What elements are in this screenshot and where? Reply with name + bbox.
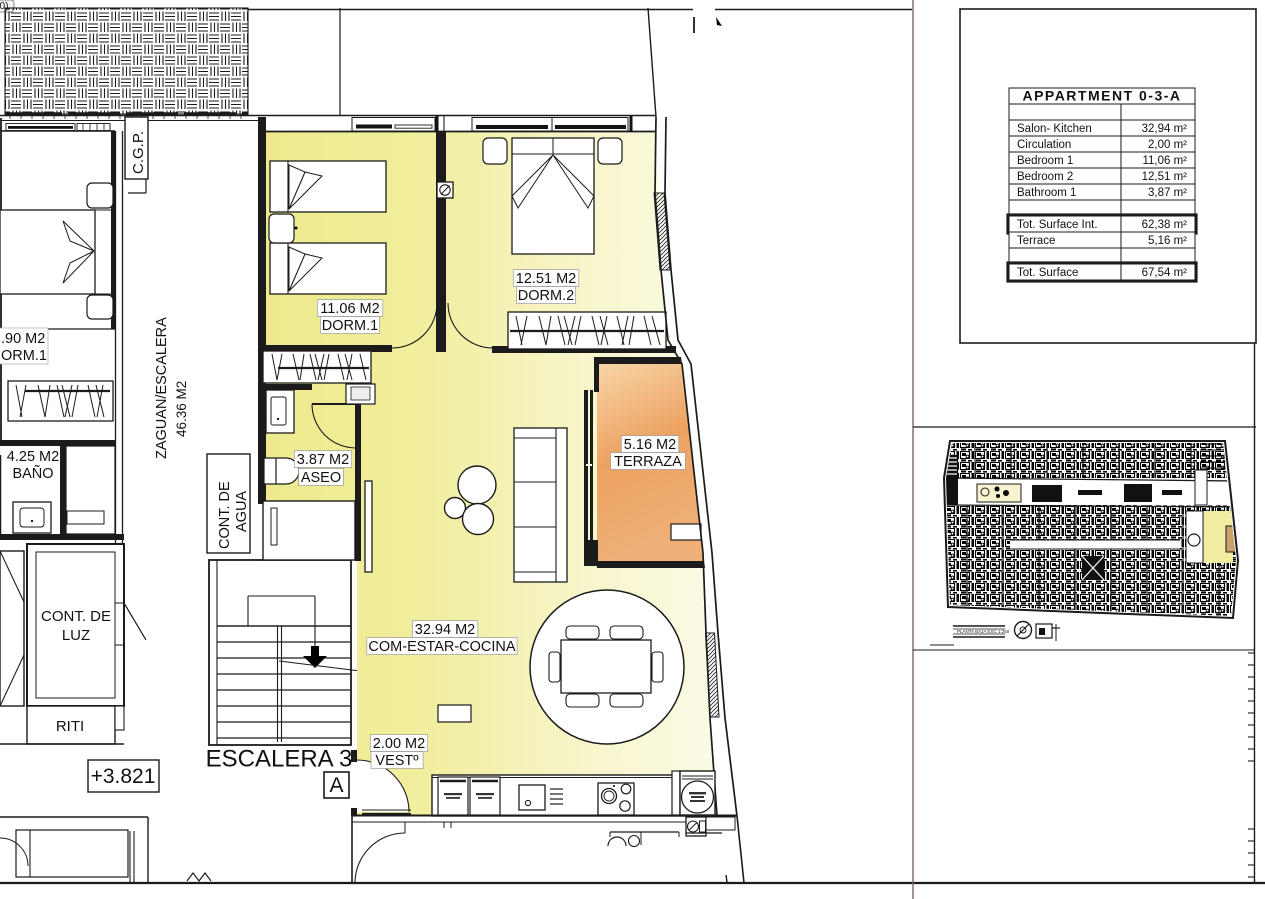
svg-text:ASEO: ASEO — [301, 470, 341, 486]
svg-text:11.06 M2: 11.06 M2 — [320, 301, 379, 317]
svg-text:12.51 M2: 12.51 M2 — [516, 271, 576, 287]
svg-text:A: A — [329, 774, 343, 797]
svg-text:67,54 m²: 67,54 m² — [1142, 267, 1188, 279]
svg-text:Tot. Surface: Tot. Surface — [1017, 267, 1078, 279]
svg-text:Bedroom 1: Bedroom 1 — [1017, 155, 1073, 167]
svg-text:Bathroom 1: Bathroom 1 — [1017, 187, 1076, 199]
svg-text:BAÑO: BAÑO — [12, 465, 53, 482]
svg-text:CONT. DE: CONT. DE — [217, 481, 233, 549]
svg-text:RITI: RITI — [56, 718, 84, 735]
svg-text:2,00 m²: 2,00 m² — [1148, 139, 1187, 151]
svg-text:2.00 M2: 2.00 M2 — [373, 736, 425, 752]
svg-text:62,38 m²: 62,38 m² — [1142, 219, 1188, 231]
svg-text:.90 M2: .90 M2 — [1, 331, 45, 347]
svg-text:11,06 m²: 11,06 m² — [1142, 155, 1187, 167]
svg-text:Circulation: Circulation — [1017, 139, 1071, 151]
svg-text:Tot. Surface Int.: Tot. Surface Int. — [1017, 219, 1098, 231]
svg-text:COM-ESTAR-COCINA: COM-ESTAR-COCINA — [368, 639, 515, 655]
svg-text:3.87 M2: 3.87 M2 — [297, 452, 349, 468]
svg-text:ZAGUAN/ESCALERA: ZAGUAN/ESCALERA — [154, 317, 170, 459]
svg-text:C.G.P.: C.G.P. — [130, 131, 147, 174]
svg-text:DORM.1: DORM.1 — [322, 318, 378, 334]
svg-text:Bedroom 2: Bedroom 2 — [1017, 171, 1073, 183]
svg-text:32,94 m²: 32,94 m² — [1142, 123, 1188, 135]
svg-text:AGUA: AGUA — [234, 491, 250, 532]
svg-text:5.16 M2: 5.16 M2 — [624, 437, 676, 453]
svg-text:Salon- Kitchen: Salon- Kitchen — [1017, 123, 1092, 135]
svg-text:CONT. DE: CONT. DE — [41, 608, 111, 625]
svg-text:46.36 M2: 46.36 M2 — [174, 381, 189, 437]
svg-text:Terrace: Terrace — [1017, 235, 1055, 247]
svg-text:TERRAZA: TERRAZA — [614, 454, 682, 470]
svg-text:32.94 M2: 32.94 M2 — [415, 622, 475, 638]
svg-text:VESTº: VESTº — [375, 753, 419, 769]
svg-text:+3.821: +3.821 — [91, 765, 156, 788]
svg-text:APPARTMENT 0-3-A: APPARTMENT 0-3-A — [1022, 88, 1181, 104]
svg-text:3,87 m²: 3,87 m² — [1148, 187, 1187, 199]
svg-text:DORM.2: DORM.2 — [518, 288, 574, 304]
svg-text:LUZ: LUZ — [62, 627, 90, 644]
svg-text:4.25 M2: 4.25 M2 — [7, 449, 59, 465]
svg-text:PLANTA BAJA ESC 1:250: PLANTA BAJA ESC 1:250 — [957, 629, 1010, 634]
svg-text:5,16 m²: 5,16 m² — [1148, 235, 1187, 247]
svg-text:ORM.1: ORM.1 — [1, 348, 47, 364]
svg-text:12,51 m²: 12,51 m² — [1142, 171, 1188, 183]
svg-text:ESCALERA 3: ESCALERA 3 — [206, 746, 353, 773]
